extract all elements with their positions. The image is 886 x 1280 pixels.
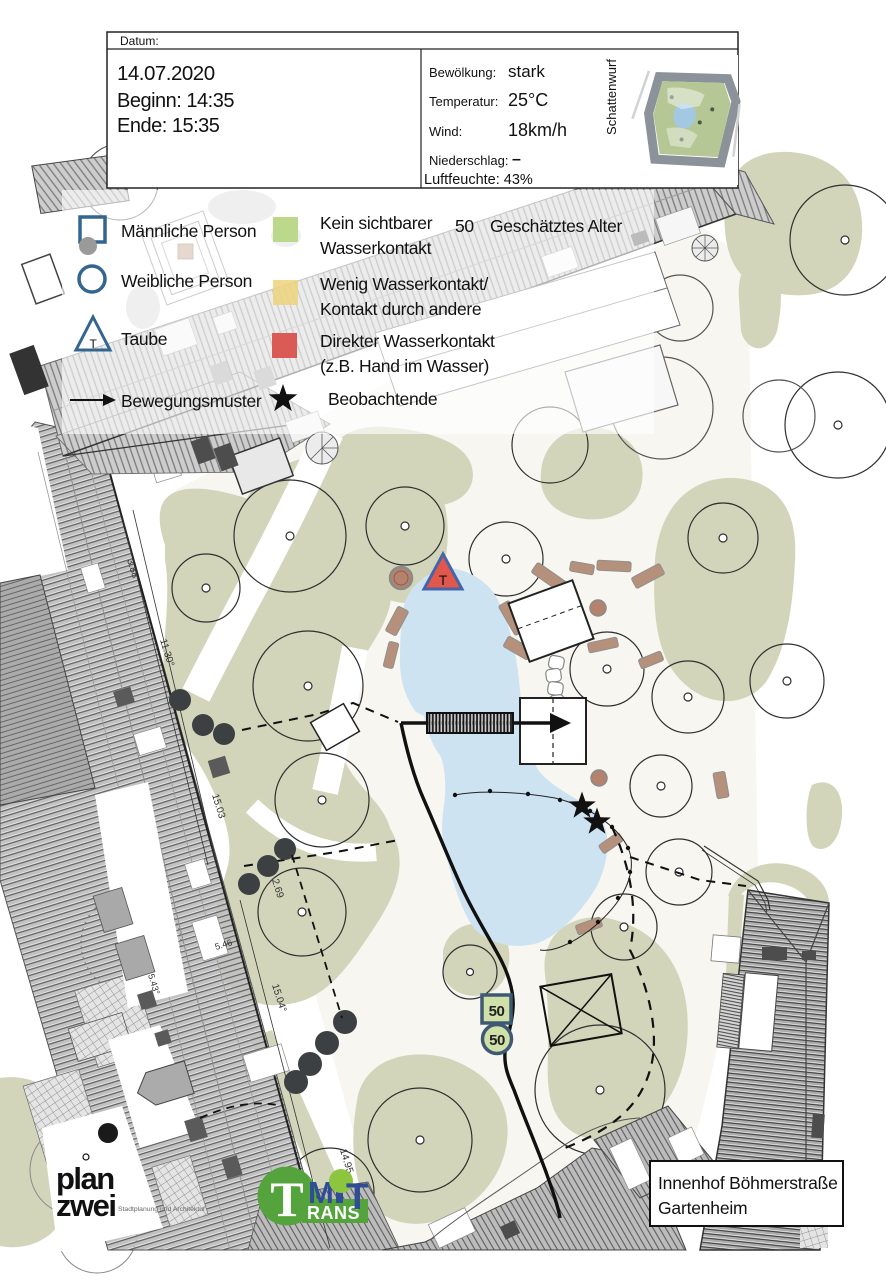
- svg-text:Niederschlag:: Niederschlag:: [429, 153, 509, 168]
- svg-text:(z.B. Hand im Wasser): (z.B. Hand im Wasser): [320, 356, 489, 376]
- svg-text:Innenhof Böhmerstraße: Innenhof Böhmerstraße: [658, 1173, 838, 1193]
- svg-text:Bewegungsmuster: Bewegungsmuster: [121, 391, 262, 411]
- svg-text:Gartenheim: Gartenheim: [658, 1198, 747, 1218]
- svg-text:Ende: 15:35: Ende: 15:35: [117, 115, 220, 137]
- svg-text:Wenig Wasserkontakt/: Wenig Wasserkontakt/: [320, 274, 489, 294]
- svg-text:T: T: [346, 1176, 369, 1217]
- svg-text:50: 50: [489, 1003, 505, 1020]
- svg-text:18km/h: 18km/h: [508, 120, 567, 140]
- svg-text:50: 50: [455, 216, 474, 236]
- svg-text:Wasserkontakt: Wasserkontakt: [320, 238, 432, 258]
- svg-text:Luftfeuchte: 43%: Luftfeuchte: 43%: [424, 172, 533, 188]
- svg-text:25°C: 25°C: [508, 90, 548, 110]
- svg-text:T: T: [270, 1171, 303, 1227]
- svg-text:T: T: [439, 572, 448, 588]
- svg-text:T: T: [89, 337, 97, 351]
- svg-text:zwei: zwei: [56, 1188, 115, 1223]
- svg-text:Temperatur:: Temperatur:: [429, 94, 498, 109]
- svg-text:Stadtplanung und Architektur: Stadtplanung und Architektur: [118, 1206, 206, 1213]
- svg-text:Männliche Person: Männliche Person: [121, 221, 256, 241]
- svg-text:Wind:: Wind:: [429, 124, 462, 139]
- svg-text:stark: stark: [508, 62, 545, 81]
- svg-text:Beginn: 14:35: Beginn: 14:35: [117, 90, 234, 112]
- svg-text:Datum:: Datum:: [120, 34, 159, 48]
- svg-text:Beobachtende: Beobachtende: [328, 389, 437, 409]
- svg-text:Kein sichtbarer: Kein sichtbarer: [320, 213, 433, 233]
- svg-text:Taube: Taube: [121, 329, 167, 349]
- svg-text:Bewölkung:: Bewölkung:: [429, 65, 496, 80]
- svg-text:Schattenwurf: Schattenwurf: [604, 59, 619, 135]
- svg-text:–: –: [512, 151, 521, 168]
- svg-text:14.07.2020: 14.07.2020: [117, 62, 215, 85]
- svg-text:Direkter Wasserkontakt: Direkter Wasserkontakt: [320, 331, 495, 351]
- svg-text:Geschätztes Alter: Geschätztes Alter: [490, 216, 623, 236]
- svg-text:50: 50: [489, 1032, 505, 1049]
- svg-text:Weibliche Person: Weibliche Person: [121, 271, 252, 291]
- svg-text:Kontakt durch andere: Kontakt durch andere: [320, 299, 481, 319]
